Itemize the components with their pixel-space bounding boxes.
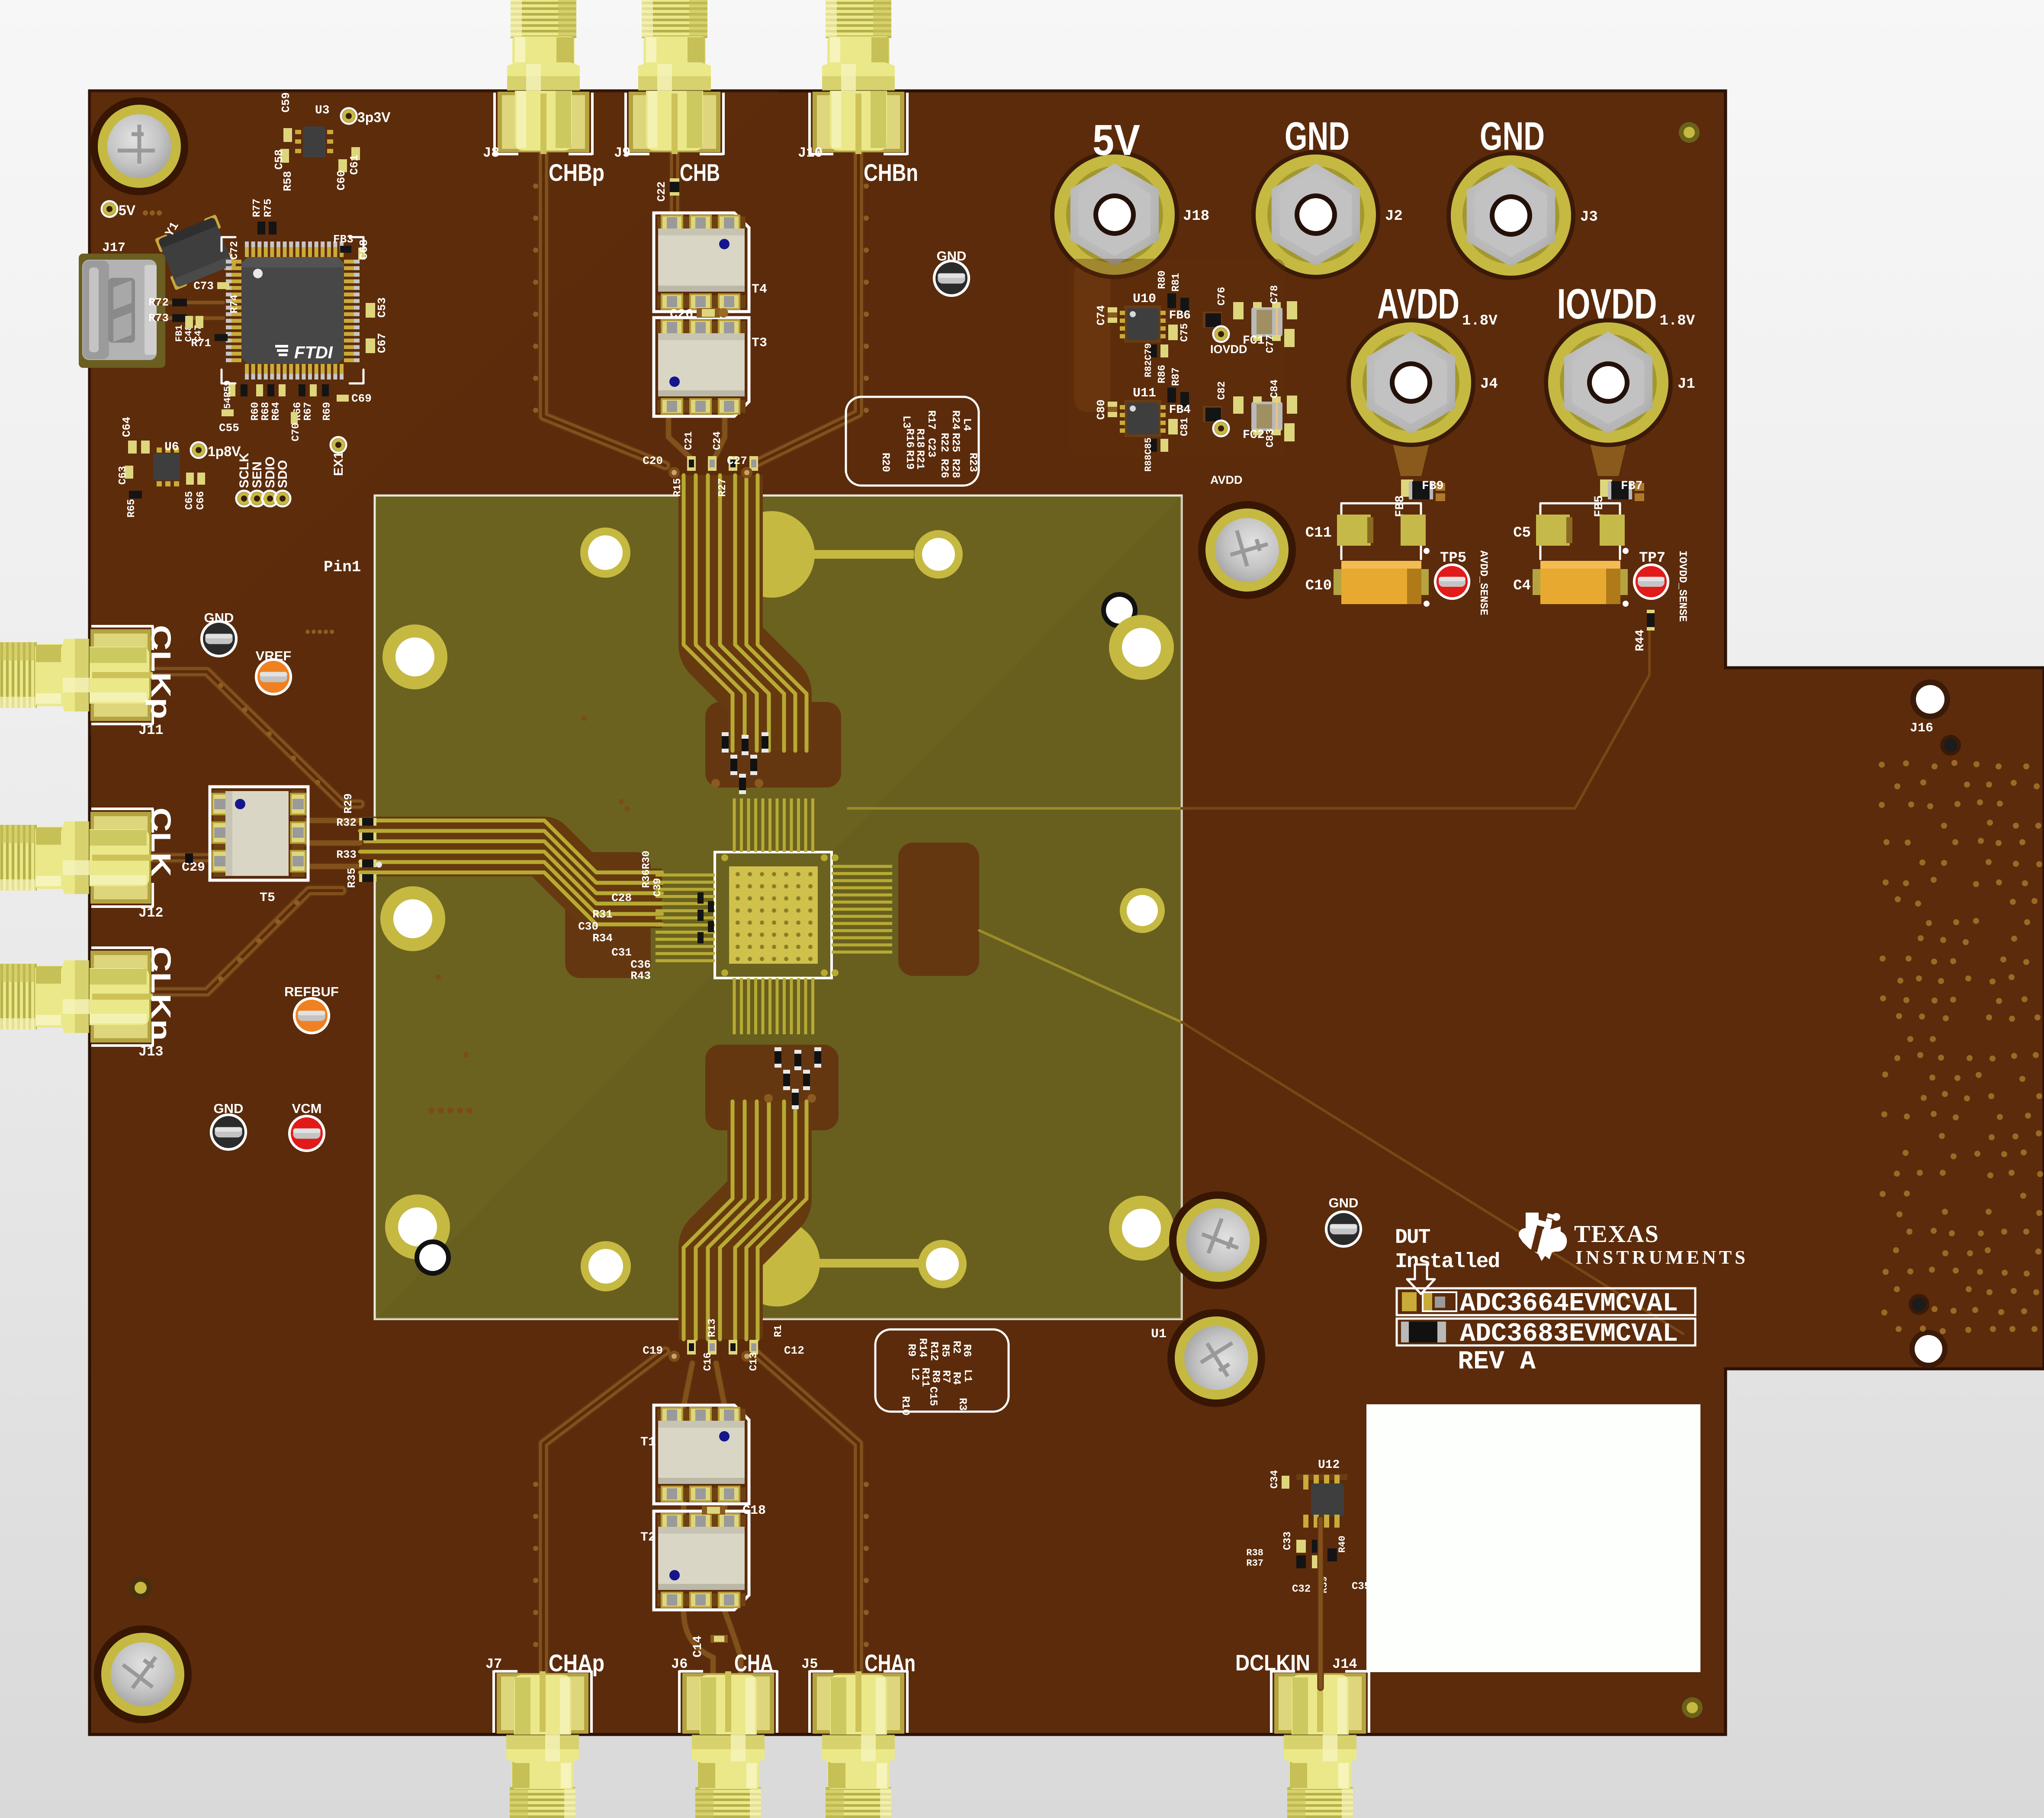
svg-text:R4: R4 <box>950 1372 963 1385</box>
svg-text:C33: C33 <box>1282 1532 1294 1550</box>
svg-text:C16: C16 <box>702 1352 714 1371</box>
svg-text:DUT: DUT <box>1395 1226 1430 1249</box>
svg-text:T1: T1 <box>640 1435 656 1450</box>
svg-text:C70: C70 <box>290 423 302 441</box>
svg-text:C58: C58 <box>273 149 286 170</box>
svg-text:R28: R28 <box>949 459 962 478</box>
svg-text:VCM: VCM <box>292 1101 322 1116</box>
svg-text:C27: C27 <box>727 454 747 467</box>
svg-text:C32: C32 <box>1292 1583 1311 1595</box>
svg-text:C26: C26 <box>670 307 693 322</box>
svg-text:C5: C5 <box>1513 525 1531 541</box>
svg-text:R26: R26 <box>938 459 951 478</box>
svg-text:IOVDD: IOVDD <box>1210 343 1247 356</box>
svg-text:VREF: VREF <box>256 648 292 663</box>
svg-text:U3: U3 <box>315 104 330 117</box>
svg-text:R29: R29 <box>342 793 355 814</box>
svg-text:C63: C63 <box>117 466 129 485</box>
svg-text:R64: R64 <box>270 402 282 421</box>
svg-text:FB4: FB4 <box>1169 403 1191 417</box>
svg-text:C76: C76 <box>1216 287 1228 306</box>
svg-text:R80: R80 <box>1157 270 1168 289</box>
svg-text:R67: R67 <box>302 402 314 421</box>
svg-text:R35: R35 <box>345 868 358 888</box>
svg-text:AVDD_SENSE: AVDD_SENSE <box>1477 550 1490 615</box>
svg-text:T3: T3 <box>752 336 767 351</box>
svg-text:C30: C30 <box>578 920 598 933</box>
svg-text:J13: J13 <box>138 1044 164 1060</box>
svg-text:Pin1: Pin1 <box>324 558 361 576</box>
svg-text:J18: J18 <box>1183 208 1209 225</box>
svg-text:EX1: EX1 <box>331 451 346 476</box>
svg-text:R27: R27 <box>717 478 729 497</box>
svg-text:C61: C61 <box>348 154 361 175</box>
svg-text:R25: R25 <box>949 433 962 452</box>
svg-text:FB5: FB5 <box>1593 496 1606 517</box>
svg-text:SCLK: SCLK <box>237 453 251 488</box>
svg-text:R38: R38 <box>1246 1548 1263 1558</box>
svg-text:R1: R1 <box>773 1325 784 1337</box>
svg-text:J7: J7 <box>485 1656 502 1672</box>
svg-text:C21: C21 <box>683 431 695 450</box>
svg-text:U1: U1 <box>1151 1327 1167 1342</box>
svg-text:AVDD: AVDD <box>1377 280 1459 328</box>
svg-text:FTDI: FTDI <box>294 343 333 362</box>
svg-text:C73: C73 <box>193 280 214 293</box>
svg-text:C12: C12 <box>784 1344 804 1357</box>
svg-text:R71: R71 <box>191 337 211 350</box>
svg-text:R15: R15 <box>672 478 684 497</box>
svg-text:R75: R75 <box>263 199 274 217</box>
svg-text:R23: R23 <box>967 453 979 472</box>
svg-text:TP5: TP5 <box>1440 550 1466 566</box>
svg-text:R22: R22 <box>938 433 951 452</box>
svg-text:1p8V: 1p8V <box>208 444 241 459</box>
svg-text:R10: R10 <box>899 1396 912 1416</box>
svg-text:FB8: FB8 <box>1394 496 1407 517</box>
svg-text:R32: R32 <box>336 816 357 829</box>
svg-text:R14: R14 <box>916 1338 929 1358</box>
svg-text:R65: R65 <box>126 499 138 518</box>
svg-text:C28: C28 <box>611 891 632 904</box>
svg-text:C53: C53 <box>376 297 389 318</box>
svg-text:R77: R77 <box>251 199 263 217</box>
svg-text:R86: R86 <box>1157 365 1168 383</box>
svg-text:C72: C72 <box>229 241 241 260</box>
svg-text:C84: C84 <box>1269 380 1281 398</box>
svg-text:C67: C67 <box>376 333 389 353</box>
svg-text:GND: GND <box>214 1101 244 1116</box>
svg-text:CLKn: CLKn <box>145 946 177 1041</box>
svg-text:REV A: REV A <box>1458 1347 1536 1377</box>
svg-text:C80: C80 <box>1095 399 1108 420</box>
svg-text:U10: U10 <box>1133 292 1156 306</box>
svg-text:R33: R33 <box>336 848 357 861</box>
svg-text:J17: J17 <box>102 241 125 255</box>
svg-text:C59: C59 <box>280 92 292 113</box>
svg-text:C19: C19 <box>643 1344 663 1357</box>
svg-text:C74: C74 <box>1095 305 1108 325</box>
svg-text:J6: J6 <box>671 1656 688 1672</box>
svg-text:C64: C64 <box>120 417 133 437</box>
svg-text:CLKp: CLKp <box>145 625 177 719</box>
svg-text:R9: R9 <box>905 1344 918 1357</box>
svg-text:SEN: SEN <box>250 461 264 488</box>
svg-text:C81: C81 <box>1179 418 1191 436</box>
svg-text:C68: C68 <box>357 239 370 260</box>
svg-text:R73: R73 <box>148 312 169 325</box>
svg-text:GND: GND <box>1329 1195 1359 1210</box>
svg-text:L1: L1 <box>961 1369 974 1382</box>
svg-text:FB9: FB9 <box>1422 479 1443 493</box>
svg-text:J14: J14 <box>1332 1656 1357 1672</box>
svg-text:R16: R16 <box>903 428 916 448</box>
svg-text:U12: U12 <box>1318 1458 1340 1472</box>
svg-text:GND: GND <box>1285 114 1350 158</box>
svg-text:R5: R5 <box>939 1344 951 1357</box>
svg-text:R24: R24 <box>949 410 962 430</box>
svg-text:1.8V: 1.8V <box>1660 313 1695 329</box>
svg-text:T2: T2 <box>640 1530 656 1545</box>
svg-text:C24: C24 <box>712 431 723 450</box>
svg-text:C22: C22 <box>655 181 668 202</box>
svg-text:R44: R44 <box>1634 630 1647 651</box>
svg-text:C82: C82 <box>1216 381 1228 400</box>
svg-text:J3: J3 <box>1580 209 1598 225</box>
svg-text:J5: J5 <box>801 1656 818 1672</box>
svg-text:FC2: FC2 <box>1243 428 1264 442</box>
svg-text:1.8V: 1.8V <box>1462 313 1498 329</box>
svg-text:CHAn: CHAn <box>865 1649 916 1676</box>
svg-text:L4: L4 <box>961 418 973 431</box>
svg-text:ADC3664EVMCVAL: ADC3664EVMCVAL <box>1460 1289 1678 1319</box>
svg-text:J16: J16 <box>1910 721 1933 736</box>
svg-text:C4: C4 <box>1513 578 1531 594</box>
svg-text:R69: R69 <box>321 402 333 421</box>
svg-text:C10: C10 <box>1305 578 1332 594</box>
svg-text:R87: R87 <box>1170 367 1182 386</box>
svg-text:C75: C75 <box>1179 323 1191 342</box>
svg-text:R40: R40 <box>1337 1535 1348 1553</box>
svg-text:TP7: TP7 <box>1639 550 1665 566</box>
svg-text:U11: U11 <box>1133 386 1156 401</box>
svg-text:R60: R60 <box>250 402 261 421</box>
svg-text:CHAp: CHAp <box>549 1649 604 1676</box>
svg-text:C55: C55 <box>219 422 239 434</box>
svg-text:C13: C13 <box>748 1352 760 1371</box>
svg-text:R43: R43 <box>630 969 651 982</box>
svg-text:C23: C23 <box>925 438 938 457</box>
svg-text:R68: R68 <box>260 402 272 421</box>
svg-text:R31: R31 <box>592 908 613 921</box>
svg-text:FB7: FB7 <box>1621 479 1642 493</box>
svg-text:C69: C69 <box>351 392 372 405</box>
svg-text:5V: 5V <box>1093 116 1140 164</box>
svg-text:J12: J12 <box>138 905 164 921</box>
svg-text:R58: R58 <box>281 171 294 191</box>
svg-text:R12: R12 <box>928 1342 940 1361</box>
svg-text:J8: J8 <box>483 145 499 161</box>
svg-text:C20: C20 <box>643 454 663 467</box>
svg-text:R81: R81 <box>1170 273 1182 292</box>
svg-text:C34: C34 <box>1269 1470 1281 1489</box>
svg-text:C31: C31 <box>611 946 632 959</box>
svg-text:C60: C60 <box>335 170 348 190</box>
svg-text:CHBn: CHBn <box>864 159 918 186</box>
svg-text:CHB: CHB <box>680 159 720 186</box>
svg-text:FB6: FB6 <box>1169 309 1191 322</box>
svg-text:IOVDD_SENSE: IOVDD_SENSE <box>1676 550 1689 622</box>
svg-text:CHBp: CHBp <box>549 159 604 186</box>
svg-text:INSTRUMENTS: INSTRUMENTS <box>1575 1247 1748 1268</box>
svg-text:J10: J10 <box>798 145 823 161</box>
svg-text:T5: T5 <box>260 891 275 905</box>
svg-text:5V: 5V <box>119 203 136 218</box>
svg-text:SDO: SDO <box>276 460 290 488</box>
svg-text:J9: J9 <box>614 145 630 161</box>
svg-text:R34: R34 <box>592 932 613 945</box>
svg-text:R20: R20 <box>879 453 892 472</box>
svg-text:GND: GND <box>204 610 234 625</box>
svg-text:J2: J2 <box>1385 208 1403 225</box>
svg-text:T4: T4 <box>752 282 767 297</box>
svg-text:R3: R3 <box>956 1398 969 1411</box>
svg-text:R36R30: R36R30 <box>641 851 652 888</box>
svg-text:AVDD: AVDD <box>1210 473 1243 486</box>
svg-text:R74: R74 <box>229 295 241 313</box>
svg-text:3p3V: 3p3V <box>357 109 391 125</box>
svg-text:C14: C14 <box>691 1636 705 1657</box>
svg-text:IOVDD: IOVDD <box>1557 280 1657 328</box>
svg-text:C78: C78 <box>1269 285 1281 304</box>
svg-text:FB3: FB3 <box>333 233 354 246</box>
svg-text:R13: R13 <box>707 1319 718 1337</box>
svg-text:R37: R37 <box>1246 1558 1263 1569</box>
svg-text:GND: GND <box>1480 114 1545 158</box>
svg-text:R88C85: R88C85 <box>1143 438 1154 472</box>
svg-text:C66: C66 <box>195 491 207 510</box>
svg-text:R17: R17 <box>925 410 938 430</box>
svg-text:C83: C83 <box>1265 429 1276 447</box>
svg-text:R19: R19 <box>903 450 916 470</box>
svg-text:C35: C35 <box>1352 1581 1370 1593</box>
svg-text:TEXAS: TEXAS <box>1574 1221 1659 1248</box>
svg-text:L3: L3 <box>900 415 913 428</box>
svg-text:C39: C39 <box>652 878 664 897</box>
svg-text:R82C79: R82C79 <box>1143 343 1154 377</box>
svg-text:DCLKIN: DCLKIN <box>1235 1651 1310 1676</box>
svg-text:Installed: Installed <box>1395 1250 1499 1274</box>
svg-text:C11: C11 <box>1305 525 1332 541</box>
svg-text:R72: R72 <box>148 296 169 309</box>
svg-text:J1: J1 <box>1678 376 1695 393</box>
svg-text:C18: C18 <box>742 1503 766 1518</box>
svg-text:C77: C77 <box>1265 335 1276 353</box>
svg-text:CLK: CLK <box>145 808 177 877</box>
svg-text:R6: R6 <box>961 1344 973 1357</box>
svg-text:C15: C15 <box>927 1387 939 1406</box>
svg-text:J4: J4 <box>1480 376 1498 393</box>
svg-text:ADC3683EVMCVAL: ADC3683EVMCVAL <box>1460 1319 1678 1349</box>
svg-text:REFBUF: REFBUF <box>284 984 339 999</box>
svg-text:U6: U6 <box>164 441 179 454</box>
svg-text:C65: C65 <box>184 491 196 510</box>
svg-text:GND: GND <box>937 248 967 264</box>
svg-text:CHA: CHA <box>734 1649 773 1676</box>
svg-text:J11: J11 <box>138 722 164 738</box>
